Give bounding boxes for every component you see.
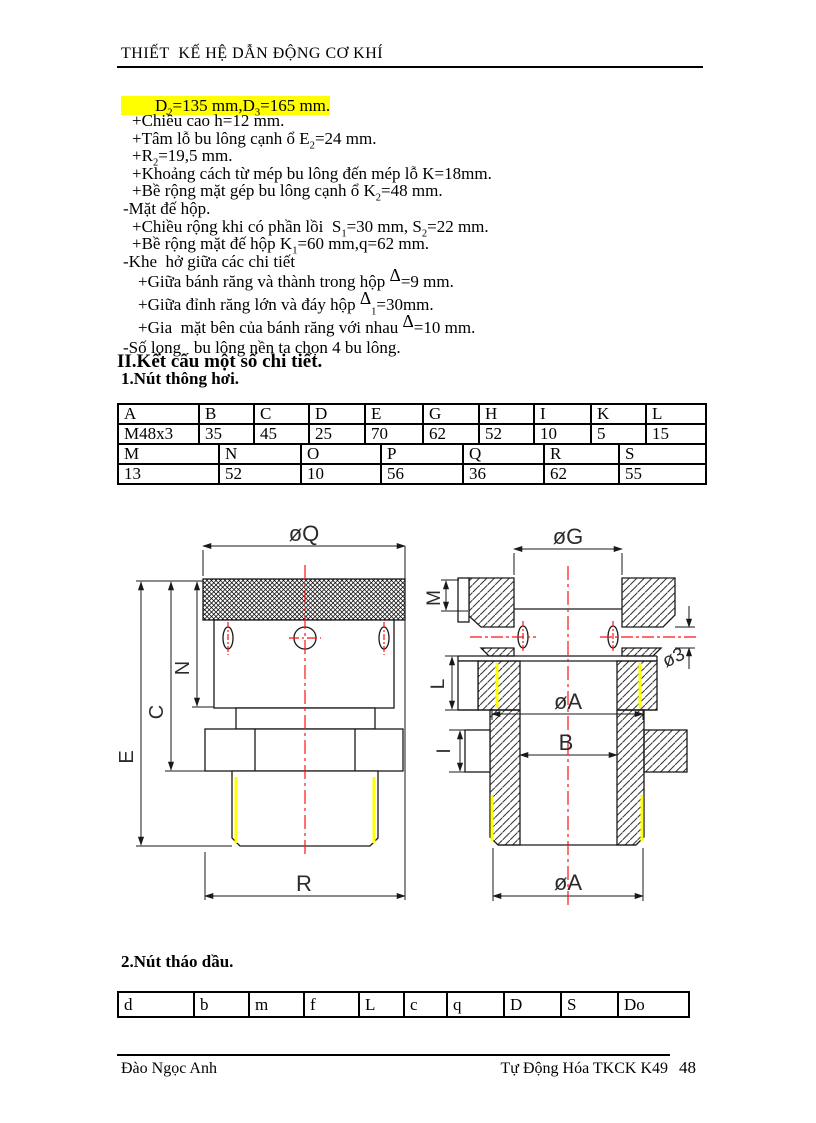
table-cell: f xyxy=(303,991,358,1016)
footer-page-number: 48 xyxy=(679,1058,696,1078)
table-cell: m xyxy=(248,991,303,1016)
dim-label-m: M xyxy=(424,590,445,606)
table-cell: D xyxy=(503,991,560,1016)
table-cell: d xyxy=(117,991,193,1016)
table-cell: 55 xyxy=(618,463,705,483)
table-cell: G xyxy=(422,403,478,423)
table-cell: c xyxy=(403,991,446,1016)
table-cell: 70 xyxy=(364,423,422,443)
dim-label-og: øG xyxy=(553,524,584,549)
table-cell: 10 xyxy=(300,463,380,483)
table-cell: 36 xyxy=(462,463,543,483)
flange-left-lip xyxy=(458,578,469,622)
spec-line: +Khoảng cách từ mép bu lông đến mép lỗ K… xyxy=(117,165,717,183)
table-cell: Do xyxy=(617,991,688,1016)
dim-label-l: L xyxy=(428,679,449,690)
table-cell: S xyxy=(560,991,617,1016)
table-cell: 56 xyxy=(380,463,462,483)
table-cell: 35 xyxy=(198,423,253,443)
table-cell: 13 xyxy=(117,463,218,483)
spec-line: +Giữa bánh răng và thành trong hộp Δ=9 m… xyxy=(117,270,717,293)
spec-line: +Bề rộng mặt gép bu lông cạnh ổ K2=48 mm… xyxy=(117,182,717,200)
subsection-title-breather: 1.Nút thông hơi. xyxy=(121,369,239,389)
table-cell: N xyxy=(218,443,300,463)
table-row: 13521056366255 xyxy=(117,463,705,483)
table-cell: M xyxy=(117,443,218,463)
table-cell: M48x3 xyxy=(117,423,198,443)
header-rule xyxy=(117,66,703,68)
document-page: THIẾT KẾ HỆ DẪN ĐỘNG CƠ KHÍ D2=135 mm,D3… xyxy=(0,0,816,1123)
table-cell: I xyxy=(533,403,590,423)
footer-rule xyxy=(117,1054,670,1056)
dim-label-oq: øQ xyxy=(289,521,320,546)
table-row: M48x335452570625210515 xyxy=(117,423,705,443)
dim-label-e: E xyxy=(116,750,138,763)
footer-course: Tự Động Hóa TKCK K49 xyxy=(420,1060,668,1078)
table-cell: K xyxy=(590,403,645,423)
dim-label-c: C xyxy=(146,705,168,719)
table-cell: 45 xyxy=(253,423,308,443)
spec-list: +Chiều cao h=12 mm.+Tâm lỗ bu lông cạnh … xyxy=(117,112,717,357)
table-cell: L xyxy=(358,991,403,1016)
page-header-title: THIẾT KẾ HỆ DẪN ĐỘNG CƠ KHÍ xyxy=(121,45,383,63)
table-row: MNOPQRS xyxy=(117,443,705,463)
spec-line: +Bề rộng mặt đế hộp K1=60 mm,q=62 mm. xyxy=(117,235,717,253)
stem-right-wall xyxy=(617,710,644,845)
table-cell: R xyxy=(543,443,618,463)
subsection-title-drain: 2.Nút tháo dầu. xyxy=(121,952,233,972)
breather-left-view: øQ E C N R xyxy=(116,521,405,900)
flange-right-wall xyxy=(622,578,675,627)
drain-plug-table: dbmfLcqDSDo xyxy=(117,991,690,1018)
table-cell: P xyxy=(380,443,462,463)
dim-label-oa-bottom: øA xyxy=(554,870,582,895)
spec-line: +Chiều cao h=12 mm. xyxy=(117,112,717,130)
table-cell: 10 xyxy=(533,423,590,443)
spec-line: +Chiều rộng khi có phần lồi S1=30 mm, S2… xyxy=(117,218,717,236)
table-cell: H xyxy=(478,403,533,423)
table-cell: 5 xyxy=(590,423,645,443)
knurled-cap xyxy=(203,579,405,620)
table-cell: A xyxy=(117,403,198,423)
ring-left xyxy=(465,730,490,772)
dim-label-n: N xyxy=(172,661,194,675)
table-cell: 15 xyxy=(645,423,705,443)
table-cell: Q xyxy=(462,443,543,463)
table-cell: 62 xyxy=(422,423,478,443)
table-cell: 52 xyxy=(218,463,300,483)
table-cell: b xyxy=(193,991,248,1016)
flange-left-wall xyxy=(469,578,514,627)
table-row: dbmfLcqDSDo xyxy=(117,991,688,1016)
spec-line: +Tâm lỗ bu lông cạnh ổ E2=24 mm. xyxy=(117,130,717,148)
table-cell: C xyxy=(253,403,308,423)
table-cell: 62 xyxy=(543,463,618,483)
breather-dimension-table: ABCDEGHIKLM48x335452570625210515MNOPQRS1… xyxy=(117,403,707,485)
technical-drawings: øQ E C N R xyxy=(110,505,730,925)
table-cell: L xyxy=(645,403,705,423)
breather-section-view: øG M ø3 L I øA B øA xyxy=(424,524,696,908)
table-cell: q xyxy=(446,991,503,1016)
table-cell: D xyxy=(308,403,364,423)
footer-author: Đào Ngọc Anh xyxy=(121,1060,217,1078)
table-cell: B xyxy=(198,403,253,423)
dim-label-b: B xyxy=(559,730,574,755)
stem-left-wall xyxy=(490,710,520,845)
hex-section xyxy=(205,729,403,771)
ring-right xyxy=(644,730,687,772)
table-cell: S xyxy=(618,443,705,463)
spec-line: -Mặt đế hộp. xyxy=(117,200,717,218)
dim-label-r: R xyxy=(296,871,312,896)
table-cell: E xyxy=(364,403,422,423)
table-cell: 52 xyxy=(478,423,533,443)
table-row: ABCDEGHIKL xyxy=(117,403,705,423)
table-cell: O xyxy=(300,443,380,463)
spec-line: +Gia mặt bên của bánh răng với nhau Δ=10… xyxy=(117,316,717,339)
spec-line: +R2=19,5 mm. xyxy=(117,147,717,165)
dim-label-i: I xyxy=(434,748,455,753)
spec-line: +Giữa đỉnh răng lớn và đáy hộp Δ1=30mm. xyxy=(117,293,717,316)
dim-label-oa-mid: øA xyxy=(554,689,582,714)
table-cell: 25 xyxy=(308,423,364,443)
spec-line: -Khe hở giữa các chi tiết xyxy=(117,253,717,271)
